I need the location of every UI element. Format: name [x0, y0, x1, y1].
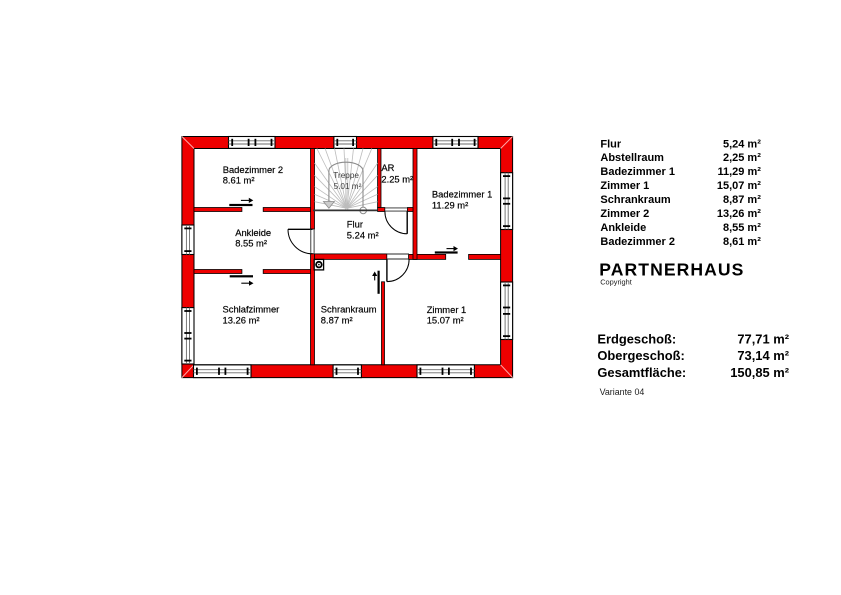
- svg-text:Ankleide: Ankleide: [600, 222, 646, 234]
- svg-text:Zimmer 2: Zimmer 2: [600, 208, 649, 220]
- svg-text:15.07 m²: 15.07 m²: [427, 315, 464, 326]
- svg-text:Badezimmer 2: Badezimmer 2: [600, 236, 675, 248]
- svg-text:15,07 m²: 15,07 m²: [717, 180, 761, 192]
- svg-text:11.29 m²: 11.29 m²: [432, 199, 468, 210]
- svg-text:Zimmer 1: Zimmer 1: [427, 304, 467, 315]
- svg-text:5.24 m²: 5.24 m²: [347, 229, 379, 240]
- svg-text:Obergeschoß:: Obergeschoß:: [597, 348, 684, 363]
- svg-text:8.87 m²: 8.87 m²: [321, 314, 353, 325]
- svg-text:Badezimmer 2: Badezimmer 2: [223, 164, 283, 175]
- svg-text:Variante 04: Variante 04: [600, 387, 645, 397]
- svg-text:5,24 m²: 5,24 m²: [723, 138, 761, 150]
- svg-text:2,25 m²: 2,25 m²: [723, 152, 761, 164]
- svg-text:Schlafzimmer: Schlafzimmer: [223, 304, 280, 315]
- svg-text:Zimmer 1: Zimmer 1: [600, 180, 649, 192]
- svg-text:8,55 m²: 8,55 m²: [723, 222, 761, 234]
- svg-text:5.01 m²: 5.01 m²: [334, 182, 362, 191]
- svg-text:8,61 m²: 8,61 m²: [723, 236, 761, 248]
- svg-text:13.26 m²: 13.26 m²: [223, 314, 260, 325]
- svg-text:Schrankraum: Schrankraum: [321, 304, 377, 315]
- svg-text:11,29 m²: 11,29 m²: [717, 166, 761, 178]
- svg-text:150,85 m²: 150,85 m²: [730, 365, 789, 380]
- svg-text:8.55 m²: 8.55 m²: [235, 238, 267, 249]
- svg-text:AR: AR: [381, 162, 394, 173]
- svg-text:8,87 m²: 8,87 m²: [723, 194, 761, 206]
- svg-text:Gesamtfläche:: Gesamtfläche:: [597, 365, 686, 380]
- svg-text:Ankleide: Ankleide: [235, 227, 271, 238]
- svg-text:73,14 m²: 73,14 m²: [737, 348, 789, 363]
- svg-text:Erdgeschoß:: Erdgeschoß:: [597, 332, 676, 347]
- svg-text:Badezimmer 1: Badezimmer 1: [600, 166, 675, 178]
- svg-text:Treppe: Treppe: [333, 171, 359, 180]
- svg-text:Schrankraum: Schrankraum: [600, 194, 671, 206]
- svg-text:Copyright: Copyright: [600, 277, 632, 286]
- svg-text:Flur: Flur: [347, 219, 363, 230]
- svg-text:Flur: Flur: [600, 138, 621, 150]
- svg-text:8.61 m²: 8.61 m²: [223, 175, 255, 186]
- svg-text:2.25 m²: 2.25 m²: [381, 173, 413, 184]
- svg-text:Badezimmer 1: Badezimmer 1: [432, 189, 492, 200]
- svg-text:Abstellraum: Abstellraum: [600, 152, 664, 164]
- svg-text:13,26 m²: 13,26 m²: [717, 208, 761, 220]
- svg-text:77,71 m²: 77,71 m²: [737, 332, 789, 347]
